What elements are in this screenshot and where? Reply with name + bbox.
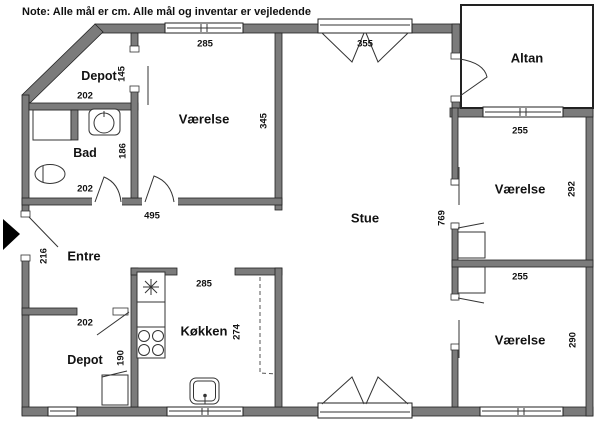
door-swing-line <box>458 223 484 228</box>
shower-icon <box>33 110 71 140</box>
cap <box>130 46 139 52</box>
kitchen-sink-icon <box>190 378 219 404</box>
window-kitchen-icon <box>167 407 243 416</box>
vaerelse-right-top-door-leaf-icon <box>458 232 485 258</box>
room-label-depot-bottom: Depot <box>67 354 102 367</box>
window-altan-icon <box>483 107 563 117</box>
wall-bad-vaerelse-stub <box>131 33 138 46</box>
cap <box>21 255 30 261</box>
toilet-icon <box>35 165 65 184</box>
room-label-altan: Altan <box>511 52 544 65</box>
wall-rightrooms-a <box>452 108 458 185</box>
cap <box>451 344 459 350</box>
dim-label-vr-bottom-w: 255 <box>512 272 528 282</box>
wall-depot-bottom <box>22 308 77 315</box>
dim-label-stue-h: 769 <box>437 210 447 226</box>
dim-label-vaerelse-top-width: 285 <box>197 39 213 49</box>
wall-vaerelse-stue <box>275 33 282 210</box>
vaerelse-door-opening <box>142 197 178 206</box>
washbasin-icon <box>89 109 120 135</box>
dim-label-depot-top-h: 145 <box>117 66 127 82</box>
room-label-vaerelse-right-bottom: Værelse <box>495 334 546 347</box>
dim-label-vaerelse-top-h: 345 <box>259 113 269 129</box>
cap <box>451 294 459 300</box>
wall-bad-vaerelse <box>131 87 138 198</box>
dim-label-entrance-h: 216 <box>39 248 49 264</box>
hob-light-icon <box>143 279 159 295</box>
entrance-door-icon <box>29 217 58 247</box>
vaerelse-right-bottom-door-leaf-icon <box>458 267 485 293</box>
dim-label-depot-bottom-door: 202 <box>77 318 93 328</box>
shower-partition <box>71 110 78 140</box>
dim-label-koekken-w: 285 <box>196 279 212 289</box>
altan-opening <box>451 59 461 96</box>
room-label-vaerelse-top: Værelse <box>179 113 230 126</box>
dim-label-koekken-h: 274 <box>232 324 242 340</box>
dim-label-bad-w: 202 <box>77 184 93 194</box>
entrance-opening <box>21 217 30 255</box>
cap <box>451 96 461 102</box>
room-label-bad: Bad <box>73 147 97 160</box>
cap <box>130 86 139 92</box>
room-label-stue: Stue <box>351 212 379 225</box>
cap <box>451 53 461 59</box>
window-vaerelse-bottom-icon <box>480 407 563 416</box>
depot-bottom-door-icon <box>97 312 129 335</box>
wall-depot-bad <box>29 103 138 110</box>
window-depot-bottom-icon <box>48 407 77 416</box>
cap <box>451 179 459 185</box>
room-label-vaerelse-right-top: Værelse <box>495 183 546 196</box>
depot-bottom-closet-icon <box>102 375 128 405</box>
dim-label-hall-w: 495 <box>144 211 160 221</box>
dim-label-vr-bottom-h: 290 <box>568 332 578 348</box>
window-vaerelse-top-icon <box>165 23 243 33</box>
dim-label-vr-top-w: 255 <box>512 126 528 136</box>
wall-kitchen-right <box>275 268 282 407</box>
entrance-arrow-icon <box>3 219 20 250</box>
wall-rightrooms-divider <box>452 260 593 267</box>
double-door-bottom-icon <box>318 377 412 418</box>
tall-cabinet-dashed-line <box>260 277 276 374</box>
room-label-depot-top: Depot <box>81 70 116 83</box>
wall-rightrooms-c <box>452 345 458 407</box>
room-label-entre: Entre <box>67 250 100 263</box>
floor-plan-page: { "note": "Note: Alle mål er cm. Alle må… <box>0 0 600 425</box>
room-label-koekken: Køkken <box>181 325 228 338</box>
dim-label-vr-top-h: 292 <box>567 181 577 197</box>
door-swing-line <box>458 298 484 303</box>
dim-label-bad-h: 186 <box>118 143 128 159</box>
dim-label-depot-top-w: 202 <box>77 91 93 101</box>
cap <box>451 223 459 229</box>
cap <box>21 211 30 217</box>
dim-label-stue-top-door: 355 <box>357 39 373 49</box>
dim-label-depot-bottom-h: 190 <box>116 350 126 366</box>
